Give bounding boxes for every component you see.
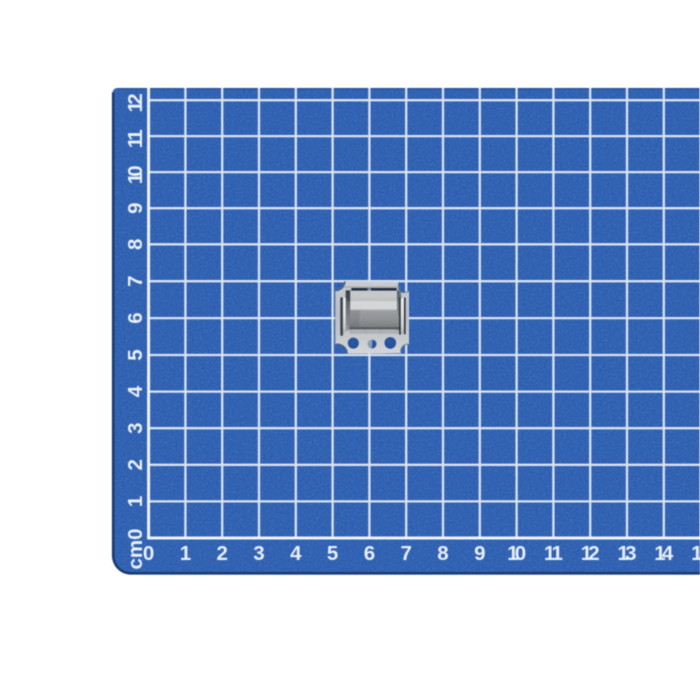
svg-text:11: 11 <box>124 129 147 148</box>
svg-text:12: 12 <box>124 93 147 112</box>
svg-text:12: 12 <box>581 542 600 565</box>
svg-text:7: 7 <box>400 542 411 565</box>
svg-text:3: 3 <box>124 422 147 433</box>
svg-text:4: 4 <box>290 542 302 565</box>
svg-text:14: 14 <box>654 542 674 565</box>
svg-text:11: 11 <box>544 542 563 565</box>
svg-text:2: 2 <box>124 459 147 470</box>
svg-text:10: 10 <box>507 542 526 565</box>
svg-text:6: 6 <box>364 542 375 565</box>
svg-text:7: 7 <box>124 275 147 286</box>
svg-text:cm0: cm0 <box>124 528 147 569</box>
svg-text:5: 5 <box>124 349 147 360</box>
svg-text:1: 1 <box>124 496 147 507</box>
svg-text:8: 8 <box>124 239 147 250</box>
svg-text:3: 3 <box>253 542 264 565</box>
svg-text:2: 2 <box>216 542 227 565</box>
svg-text:1: 1 <box>180 542 191 565</box>
svg-text:9: 9 <box>124 202 147 213</box>
svg-text:4: 4 <box>124 385 147 397</box>
svg-text:10: 10 <box>124 165 147 184</box>
svg-text:9: 9 <box>474 542 485 565</box>
svg-text:13: 13 <box>618 542 637 565</box>
svg-text:6: 6 <box>124 312 147 323</box>
svg-text:15: 15 <box>691 542 700 565</box>
svg-text:5: 5 <box>327 542 338 565</box>
svg-text:8: 8 <box>437 542 448 565</box>
